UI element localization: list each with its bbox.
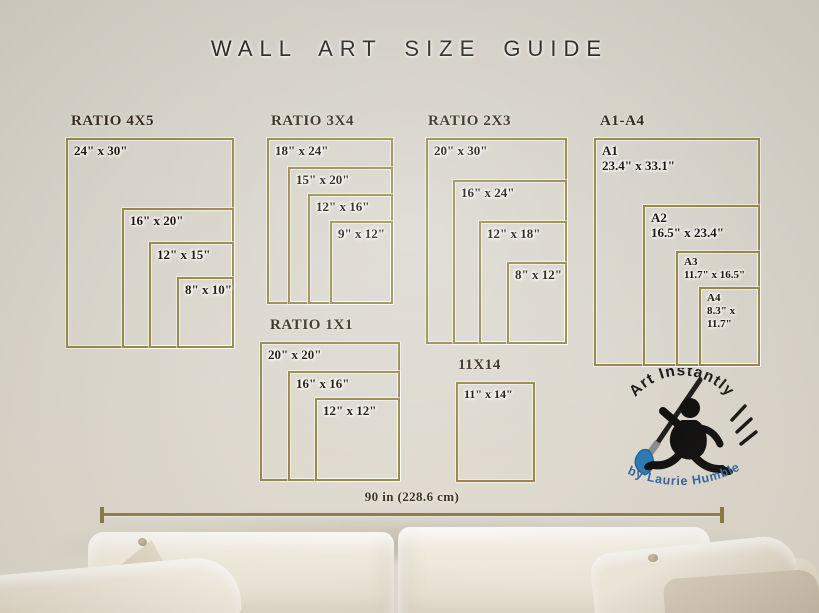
size-dims: 11.7" x 16.5"	[684, 269, 745, 282]
frame-stack: 20" x 30" 16" x 24" 12" x 18" 8" x 12"	[426, 138, 567, 344]
size-name: A1	[602, 143, 675, 158]
group-heading-ratio-3x4: RATIO 3X4	[271, 112, 393, 130]
size-label: 20" x 20"	[268, 347, 321, 363]
size-label: 18" x 24"	[275, 143, 328, 159]
size-group-ratio-4x5: RATIO 4X5 24" x 30" 16" x 20" 12" x 15" …	[66, 112, 234, 348]
size-label: 12" x 18"	[487, 226, 540, 242]
size-label: 20" x 30"	[434, 143, 487, 159]
size-name: A3	[684, 256, 745, 269]
size-box-9x12: 9" x 12"	[330, 221, 393, 304]
size-label: A3 11.7" x 16.5"	[684, 256, 745, 282]
size-box-12x12: 12" x 12"	[315, 398, 400, 481]
size-dims: 16.5" x 23.4"	[651, 225, 724, 240]
artist-logo-graphic: Art Instantly	[600, 368, 768, 520]
logo-arc-top-text: Art Instantly	[626, 368, 738, 400]
size-group-ratio-2x3: RATIO 2X3 20" x 30" 16" x 24" 12" x 18" …	[426, 112, 567, 344]
size-label: A1 23.4" x 33.1"	[602, 143, 675, 173]
frame-stack: 20" x 20" 16" x 16" 12" x 12"	[260, 342, 400, 481]
group-heading-ratio-2x3: RATIO 2X3	[428, 112, 567, 130]
group-heading-11x14: 11X14	[458, 356, 535, 374]
svg-text:Art Instantly: Art Instantly	[626, 368, 738, 400]
size-label: 12" x 16"	[316, 199, 369, 215]
wall-art-size-guide-image: WALL ART SIZE GUIDE RATIO 4X5 24" x 30" …	[0, 0, 819, 613]
running-painter-icon	[643, 398, 734, 476]
frame-stack: 24" x 30" 16" x 20" 12" x 15" 8" x 10"	[66, 138, 234, 348]
group-heading-ratio-4x5: RATIO 4X5	[71, 112, 234, 130]
pillow-knot-right	[648, 554, 658, 562]
size-box-a4: A4 8.3" x 11.7"	[699, 287, 760, 366]
size-label: 8" x 10"	[185, 282, 232, 298]
size-box-8x10: 8" x 10"	[177, 277, 234, 348]
size-box-11x14: 11" x 14"	[456, 382, 535, 482]
size-label: 16" x 20"	[130, 213, 183, 229]
frame-stack: 11" x 14"	[456, 382, 535, 482]
size-label: A4 8.3" x 11.7"	[707, 292, 735, 331]
size-group-a1-a4: A1-A4 A1 23.4" x 33.1" A2 16.5" x 23.4" …	[594, 112, 760, 366]
size-label: 9" x 12"	[338, 226, 385, 242]
size-box-8x12: 8" x 12"	[507, 262, 567, 344]
size-label: 12" x 15"	[157, 247, 210, 263]
size-dims: 11.7"	[707, 318, 735, 331]
size-label: 12" x 12"	[323, 403, 376, 419]
size-label: 8" x 12"	[515, 267, 562, 283]
size-dims: 23.4" x 33.1"	[602, 158, 675, 173]
size-label: A2 16.5" x 23.4"	[651, 210, 724, 240]
group-heading-ratio-1x1: RATIO 1X1	[270, 316, 400, 334]
motion-lines-icon	[732, 406, 756, 444]
artist-logo: Art Instantly	[600, 368, 768, 520]
size-label: 16" x 24"	[461, 185, 514, 201]
size-group-ratio-3x4: RATIO 3X4 18" x 24" 15" x 20" 12" x 16" …	[267, 112, 393, 304]
page-title: WALL ART SIZE GUIDE	[0, 36, 819, 62]
size-label: 24" x 30"	[74, 143, 127, 159]
size-name: A4	[707, 292, 735, 305]
frame-stack: 18" x 24" 15" x 20" 12" x 16" 9" x 12"	[267, 138, 393, 304]
frame-stack: A1 23.4" x 33.1" A2 16.5" x 23.4" A3 11.…	[594, 138, 760, 366]
size-group-11x14: 11X14 11" x 14"	[456, 356, 535, 482]
couch	[0, 516, 819, 613]
size-label: 11" x 14"	[464, 387, 513, 402]
size-label: 15" x 20"	[296, 172, 349, 188]
size-group-ratio-1x1: RATIO 1X1 20" x 20" 16" x 16" 12" x 12"	[260, 316, 400, 481]
size-name: A2	[651, 210, 724, 225]
size-dims: 8.3" x	[707, 305, 735, 318]
group-heading-a1-a4: A1-A4	[600, 112, 760, 130]
size-label: 16" x 16"	[296, 376, 349, 392]
